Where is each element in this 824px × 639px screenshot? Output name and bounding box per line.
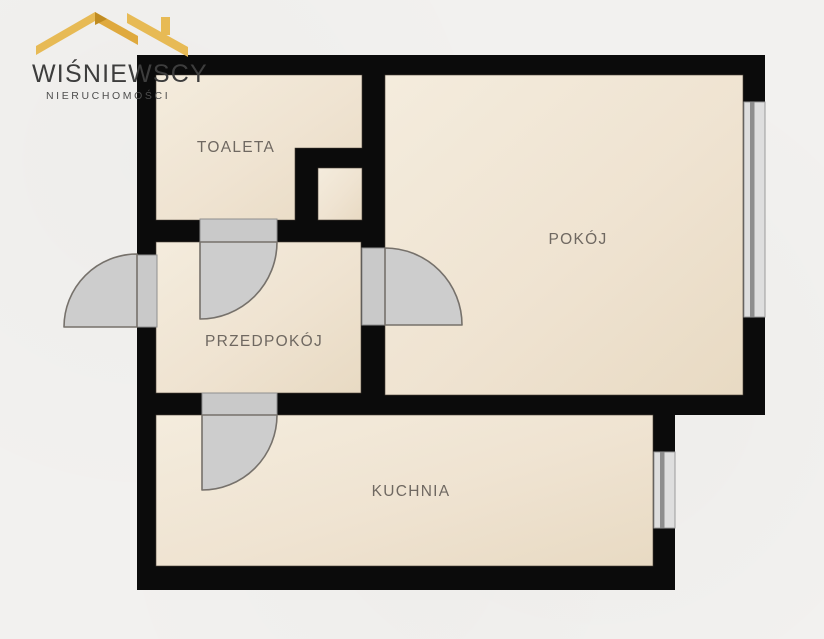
pokoj-window xyxy=(744,102,765,317)
entry-door xyxy=(64,254,157,327)
brand-tagline: NIERUCHOMOŚCI xyxy=(46,90,170,102)
floorplan-canvas: TOALETA POKÓJ PRZEDPOKÓJ KUCHNIA WIŚNIEW… xyxy=(0,0,824,639)
vent-shaft xyxy=(318,168,362,220)
agency-logo: WIŚNIEWSCY NIERUCHOMOŚCI xyxy=(0,0,260,120)
room-label-przedpokoj: PRZEDPOKÓJ xyxy=(205,333,323,351)
brand-name: WIŚNIEWSCY xyxy=(32,60,208,89)
kuchnia-window xyxy=(654,452,675,528)
room-label-pokoj: POKÓJ xyxy=(548,231,607,249)
room-label-kuchnia: KUCHNIA xyxy=(372,483,451,501)
room-label-toaleta: TOALETA xyxy=(197,139,275,157)
